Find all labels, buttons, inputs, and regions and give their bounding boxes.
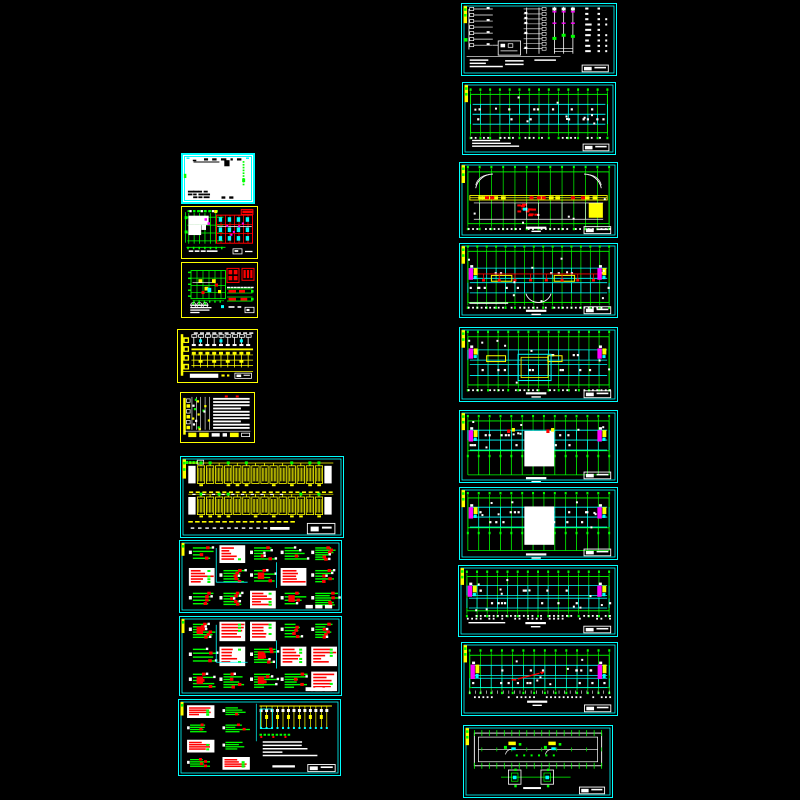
drawing-sheet-distribution-system-diagram-3 bbox=[179, 616, 342, 696]
drawing-sheet-riser-system-diagram bbox=[461, 3, 617, 76]
sheet-L6-graphics bbox=[181, 457, 343, 537]
sheet-R2-graphics bbox=[463, 83, 615, 154]
sheet-R8-graphics bbox=[459, 566, 617, 636]
drawing-sheet-ground-floor-plan bbox=[459, 162, 618, 238]
drawing-sheet-equipment-layout-plan bbox=[181, 262, 258, 318]
sheet-R10-graphics bbox=[464, 726, 612, 797]
drawing-sheet-distribution-system-diagram-2 bbox=[179, 540, 342, 613]
drawing-sheet-roof-plan bbox=[463, 725, 613, 798]
drawing-sheet-equipment-schedule bbox=[180, 392, 255, 443]
drawing-sheet-second-floor-plan bbox=[459, 327, 618, 402]
sheet-L2-graphics bbox=[182, 207, 257, 258]
drawing-sheet-fourth-floor-plan bbox=[459, 487, 618, 560]
drawing-sheet-basement-grid-plan bbox=[462, 82, 616, 155]
drawing-sheet-sixth-floor-plan bbox=[461, 642, 618, 716]
sheet-R6-graphics bbox=[460, 411, 617, 482]
sheet-R9-graphics bbox=[462, 643, 617, 715]
sheet-L1-graphics bbox=[183, 155, 253, 202]
sheet-R7-graphics bbox=[460, 488, 617, 559]
sheet-R3-graphics bbox=[460, 163, 617, 237]
drawing-sheet-distribution-system-diagram-4 bbox=[178, 699, 341, 776]
drawing-sheet-fifth-floor-plan bbox=[458, 565, 618, 637]
cad-preview-canvas bbox=[0, 0, 800, 800]
drawing-sheet-main-wiring-diagram bbox=[177, 329, 258, 383]
drawing-sheet-first-floor-plan bbox=[459, 243, 618, 318]
sheet-R5-graphics bbox=[460, 328, 617, 401]
sheet-L7-graphics bbox=[180, 541, 341, 612]
sheet-R4-graphics bbox=[460, 244, 617, 317]
drawing-sheet-cover-sheet bbox=[181, 153, 255, 204]
sheet-L9-graphics bbox=[179, 700, 340, 775]
sheet-L5-graphics bbox=[181, 393, 254, 442]
drawing-sheet-substation-room-plan bbox=[181, 206, 258, 259]
sheet-L8-graphics bbox=[180, 617, 341, 695]
sheet-R1-graphics bbox=[462, 4, 616, 75]
sheet-L4-graphics bbox=[178, 330, 257, 382]
drawing-sheet-third-floor-plan bbox=[459, 410, 618, 483]
sheet-L3-graphics bbox=[182, 263, 257, 317]
drawing-sheet-distribution-system-diagram-1 bbox=[180, 456, 344, 538]
